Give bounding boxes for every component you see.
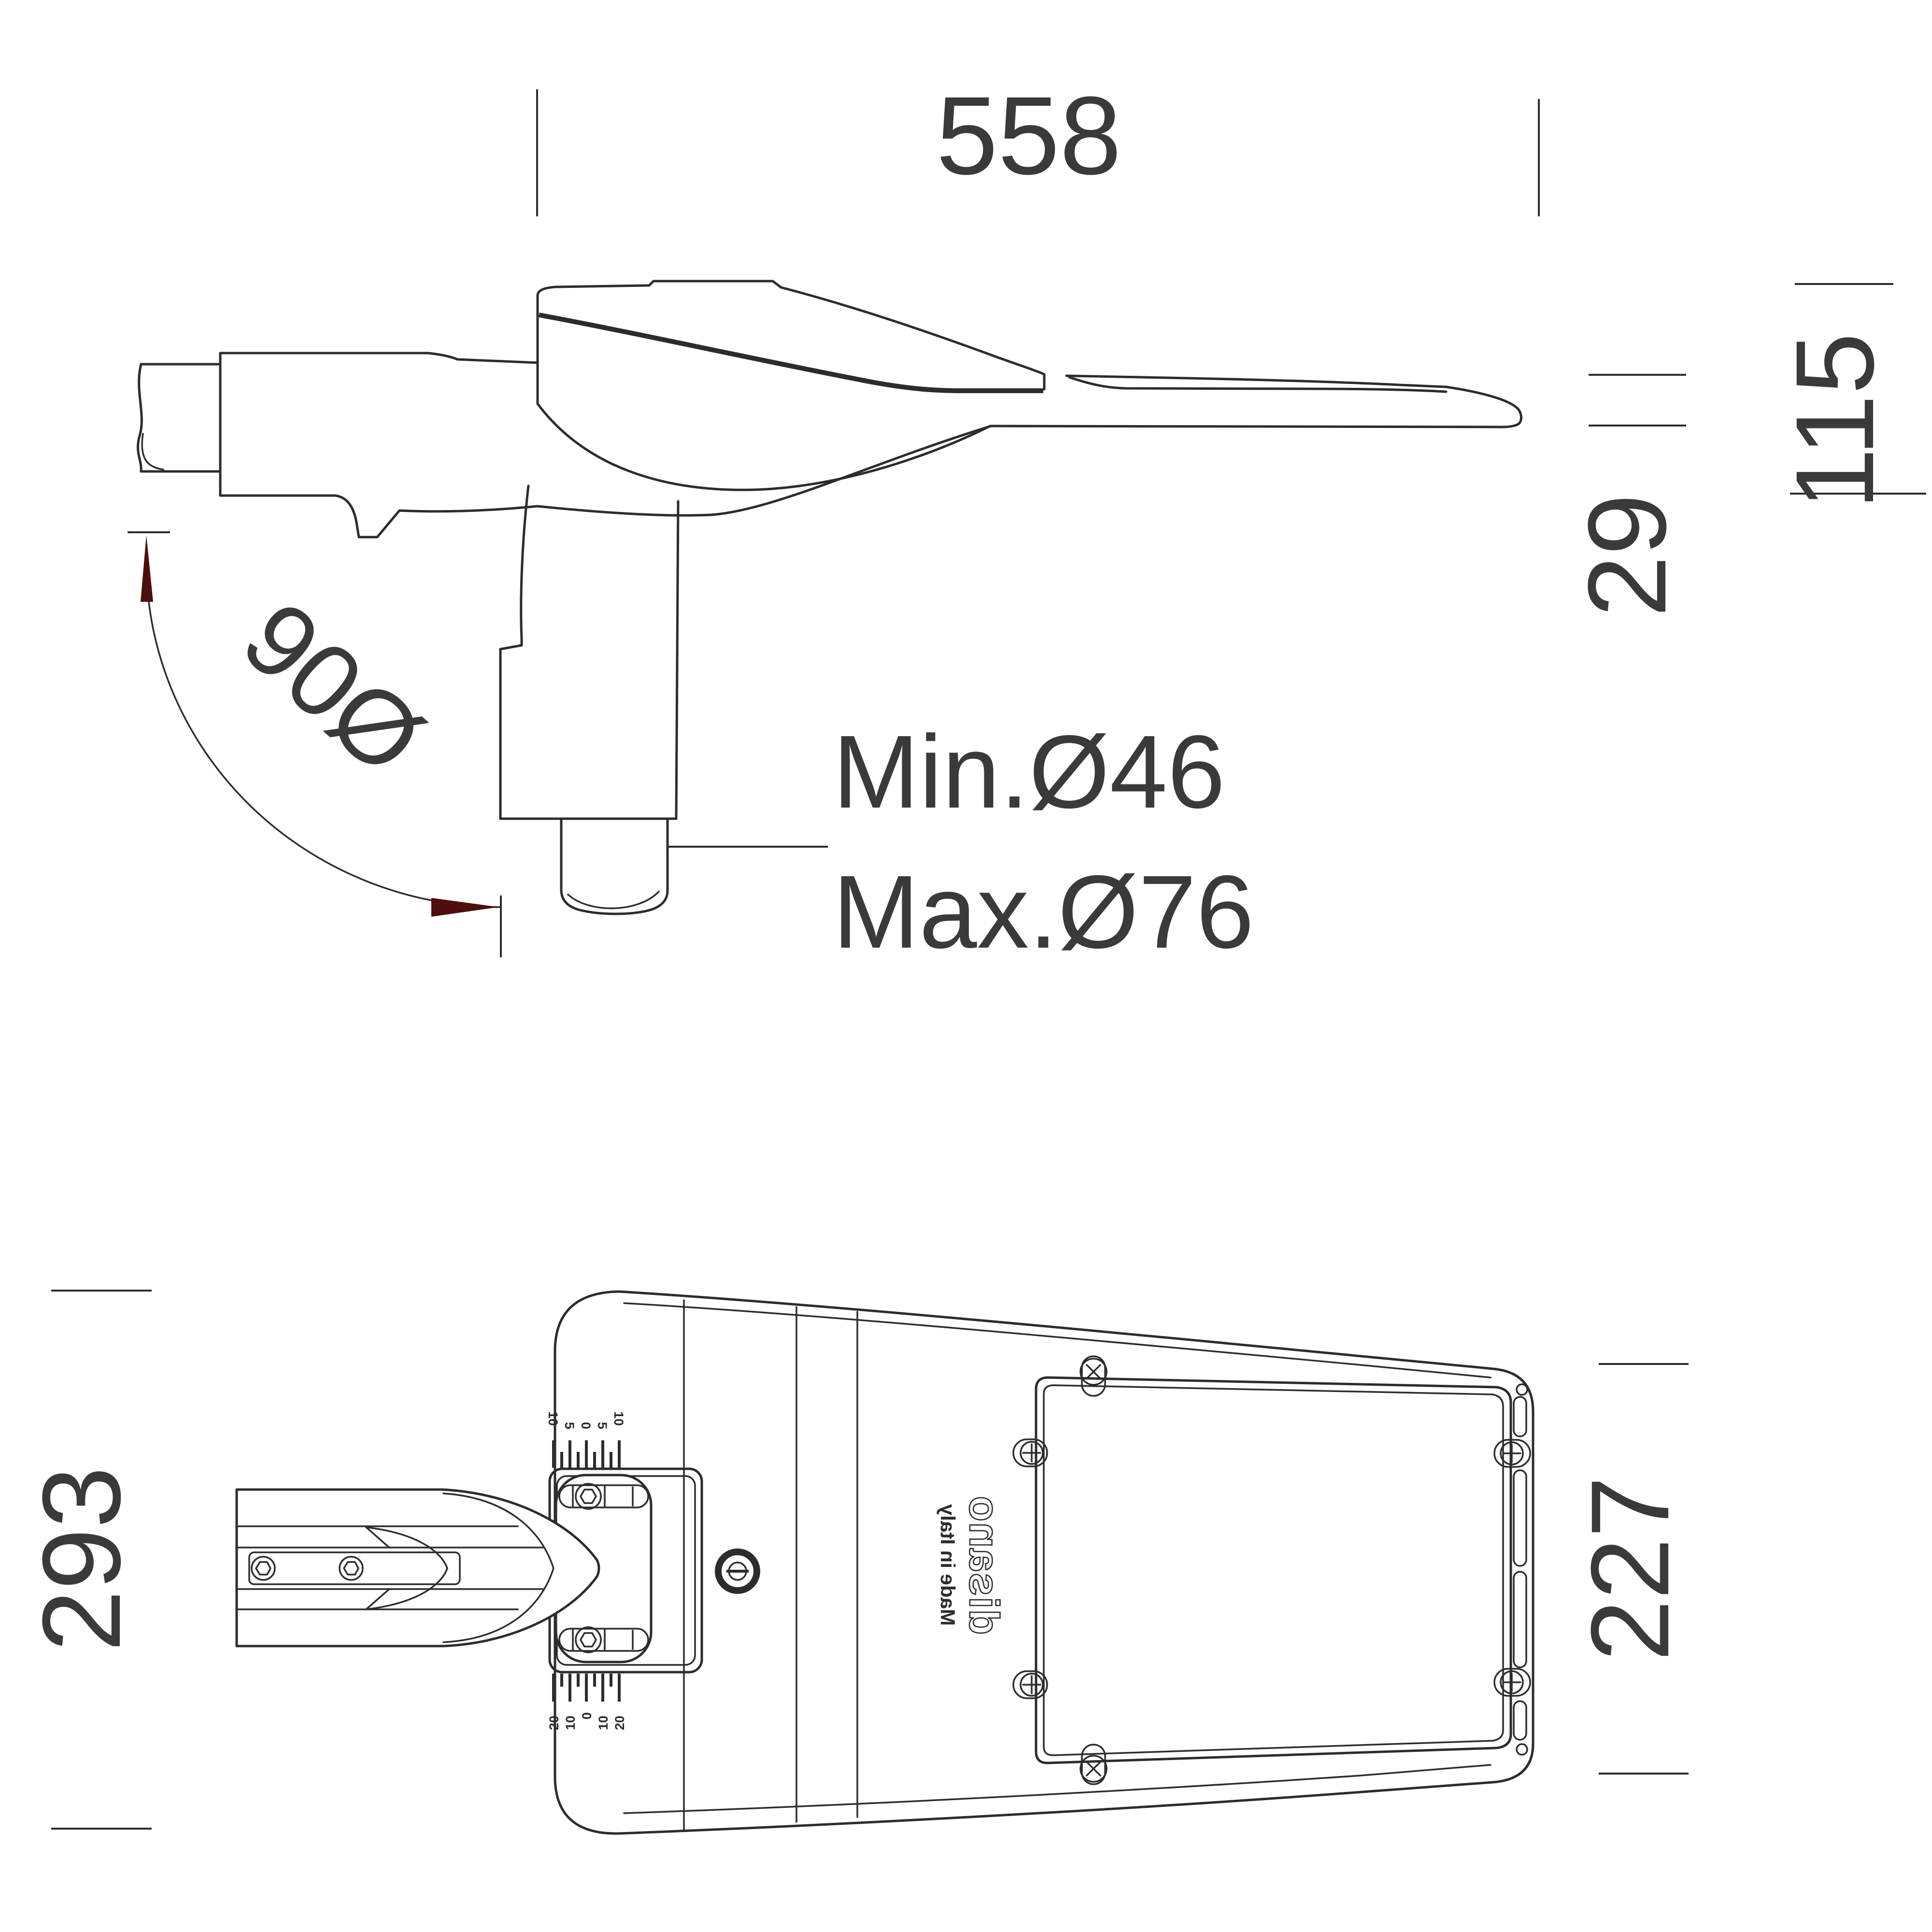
phillips-icon xyxy=(1087,1762,1100,1776)
arm-bottom-line xyxy=(991,426,1498,427)
lamp-head xyxy=(538,281,1521,515)
phillips-icon xyxy=(1087,1365,1100,1378)
mounting-bracket xyxy=(220,353,538,537)
frame-clip-right-top xyxy=(1494,1440,1530,1467)
tilt-scale-bottom: 20 10 0 10 20 xyxy=(547,1674,627,1730)
rotation-label: 90Ø xyxy=(221,579,445,797)
scale-label: 20 xyxy=(612,1716,627,1730)
dimension-29: 29 xyxy=(1565,375,1689,617)
dimension-115: 115 xyxy=(1773,284,1926,510)
frame-clip-left-bottom xyxy=(1013,1671,1047,1698)
dimension-558: 558 xyxy=(537,73,1539,216)
scale-label: 5 xyxy=(562,1422,577,1429)
pole-cylinder xyxy=(138,364,220,471)
scale-label: 10 xyxy=(611,1411,626,1426)
arc-arrow-up-icon xyxy=(141,535,153,602)
bottom-view: 10 5 0 5 10 20 10 0 10 20 xyxy=(19,1291,1692,1833)
swivel-joint xyxy=(500,486,678,914)
scale-label: 0 xyxy=(579,1422,593,1429)
pole-min-label: Min.Ø46 xyxy=(833,713,1225,830)
frame-clip-right-bottom xyxy=(1494,1669,1530,1696)
dimension-227: 227 xyxy=(1568,1364,1692,1774)
arc-arrow-right-icon xyxy=(431,898,499,917)
arm-tip-outline xyxy=(1446,387,1521,427)
central-screw xyxy=(718,1552,757,1591)
housing-rim-top xyxy=(624,1303,1491,1378)
body-seam-curve xyxy=(538,404,990,490)
post-right-edge xyxy=(676,501,678,819)
scale-label: 10 xyxy=(596,1716,611,1730)
scale-label: 10 xyxy=(546,1411,560,1426)
phillips-icon xyxy=(1023,1444,1040,1462)
body-bottom-outline xyxy=(538,426,991,515)
corner-hole xyxy=(1517,1744,1527,1755)
rotation-indicator: 90Ø xyxy=(128,532,501,957)
hinge-slot xyxy=(1514,1397,1526,1436)
housing-rim-bottom xyxy=(624,1765,1491,1813)
dimension-293: 293 xyxy=(19,1291,152,1829)
frame-screw-top xyxy=(1080,1356,1107,1396)
pole-stub-endcap xyxy=(568,892,659,909)
pole-break-line xyxy=(138,364,142,471)
corner-hole xyxy=(1517,1384,1527,1395)
scale-label: 20 xyxy=(547,1716,561,1730)
phillips-icon xyxy=(1503,1445,1520,1462)
tilt-scale-top: 10 5 0 5 10 xyxy=(546,1411,626,1468)
bracket-bottom-edge xyxy=(220,496,538,537)
phillips-icon xyxy=(1023,1676,1040,1693)
logo: disano Made in Italy xyxy=(937,1495,1007,1634)
made-in-italy-text: Made in Italy xyxy=(937,1504,959,1626)
dim-29-label: 29 xyxy=(1565,494,1689,617)
scale-label: 5 xyxy=(595,1422,610,1429)
technical-drawing: 558 115 29 90Ø Min.Ø46 Max.Ø76 xyxy=(0,0,1932,1932)
pole-endcap-arc xyxy=(142,434,163,469)
side-view: 558 115 29 90Ø Min.Ø46 Max.Ø76 xyxy=(128,73,1926,970)
dim-293-label: 293 xyxy=(19,1466,143,1652)
dim-227-label: 227 xyxy=(1568,1476,1692,1662)
hinge-slot xyxy=(1514,1470,1526,1566)
post-left-edge xyxy=(500,486,528,819)
pole-max-label: Max.Ø76 xyxy=(833,853,1254,970)
canopy-outline xyxy=(538,281,1044,404)
drawing-sheet: 558 115 29 90Ø Min.Ø46 Max.Ø76 xyxy=(0,0,1932,1932)
frame-inner xyxy=(1044,1385,1503,1755)
frame-clip-left-top xyxy=(1013,1439,1047,1466)
bracket-top-edge xyxy=(220,353,538,363)
pole-diameter-note: Min.Ø46 Max.Ø76 xyxy=(668,713,1254,970)
hinge-slot xyxy=(1514,1701,1526,1740)
arm-outline xyxy=(237,1490,599,1646)
phillips-icon xyxy=(1503,1674,1520,1691)
dim-558-label: 558 xyxy=(936,73,1122,198)
scale-label: 0 xyxy=(580,1712,594,1719)
frame-outer xyxy=(1036,1378,1511,1763)
arm-top-upper-line xyxy=(1066,376,1446,387)
canopy-inner-line xyxy=(539,315,1043,391)
dim-115-label: 115 xyxy=(1773,333,1897,510)
hinge-slot xyxy=(1514,1572,1526,1667)
brand-logo-text: disano xyxy=(961,1495,1007,1634)
glass-panel-frame xyxy=(1013,1356,1530,1784)
pole-stub-outline xyxy=(561,819,668,914)
frame-screw-bottom xyxy=(1080,1745,1107,1784)
scale-label: 10 xyxy=(563,1716,578,1730)
mounting-arm xyxy=(237,1490,599,1646)
